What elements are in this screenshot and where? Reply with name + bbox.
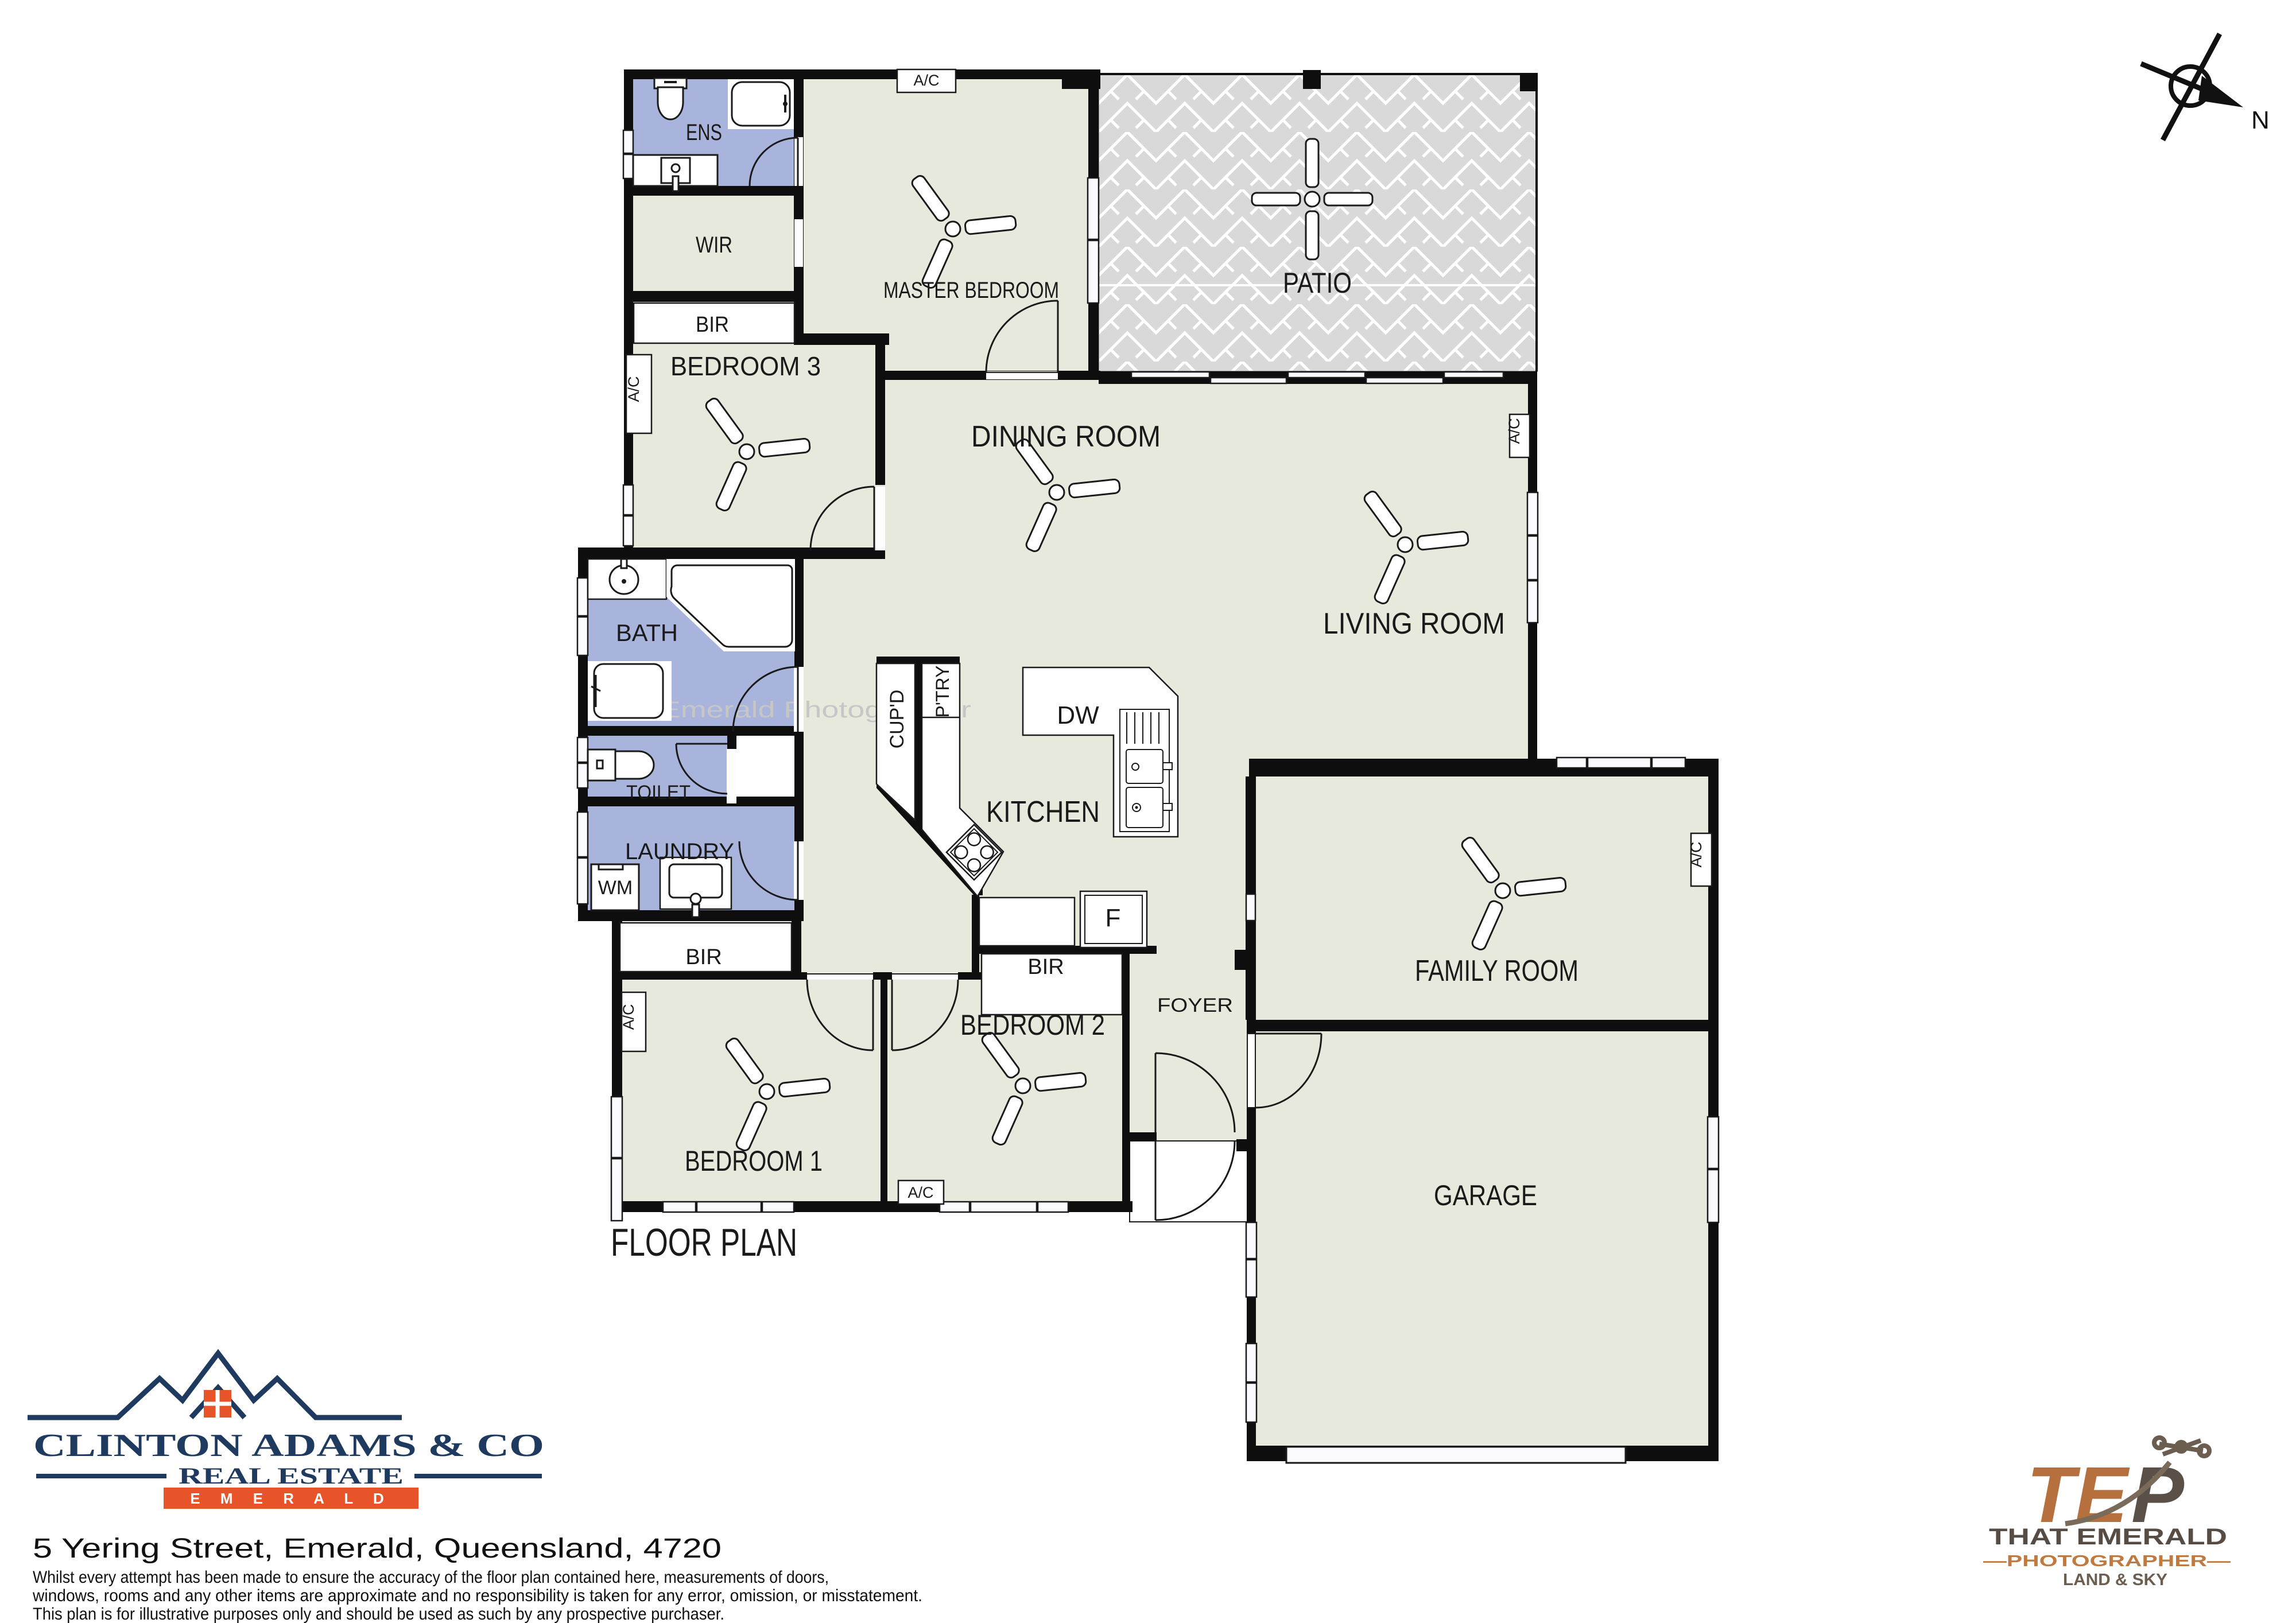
svg-text:DW: DW (1057, 701, 1099, 729)
svg-text:FAMILY ROOM: FAMILY ROOM (1415, 954, 1578, 988)
svg-text:A/C: A/C (1688, 841, 1705, 867)
svg-text:REAL ESTATE: REAL ESTATE (179, 1463, 404, 1489)
svg-text:windows, rooms and any other i: windows, rooms and any other items are a… (32, 1586, 922, 1605)
svg-text:E M E R A L D: E M E R A L D (190, 1490, 392, 1507)
svg-text:CLINTON ADAMS & CO: CLINTON ADAMS & CO (33, 1428, 544, 1463)
svg-text:A/C: A/C (1506, 418, 1523, 444)
svg-text:BIR: BIR (696, 313, 729, 337)
svg-text:P'TRY: P'TRY (932, 666, 953, 718)
svg-text:KITCHEN: KITCHEN (986, 795, 1100, 829)
svg-text:F: F (1106, 904, 1121, 932)
svg-text:LAND & SKY: LAND & SKY (2063, 1571, 2167, 1589)
svg-text:WIR: WIR (696, 232, 732, 258)
svg-text:LIVING ROOM: LIVING ROOM (1323, 607, 1505, 640)
svg-text:BEDROOM 3: BEDROOM 3 (670, 351, 821, 381)
svg-text:BEDROOM 2: BEDROOM 2 (960, 1009, 1105, 1041)
svg-text:GARAGE: GARAGE (1434, 1179, 1537, 1212)
svg-text:BEDROOM 1: BEDROOM 1 (685, 1145, 823, 1177)
svg-text:A/C: A/C (620, 1004, 637, 1030)
svg-text:PATIO: PATIO (1283, 267, 1352, 299)
svg-text:MASTER BEDROOM: MASTER BEDROOM (883, 278, 1059, 303)
svg-text:ENS: ENS (686, 120, 722, 145)
svg-text:N: N (2251, 106, 2270, 134)
svg-text:TOILET: TOILET (626, 782, 691, 803)
svg-text:BIR: BIR (685, 945, 722, 969)
svg-text:5 Yering Street, Emerald, Quee: 5 Yering Street, Emerald, Queensland, 47… (33, 1533, 722, 1564)
svg-text:LAUNDRY: LAUNDRY (625, 839, 734, 864)
svg-text:—PHOTOGRAPHER—: —PHOTOGRAPHER— (1983, 1552, 2231, 1570)
svg-text:BIR: BIR (1027, 955, 1064, 979)
svg-text:Whilst every attempt has been: Whilst every attempt has been made to en… (33, 1568, 829, 1587)
svg-text:CUP'D: CUP'D (886, 690, 908, 749)
svg-text:DINING ROOM: DINING ROOM (971, 420, 1161, 453)
svg-text:A/C: A/C (907, 1184, 933, 1201)
svg-text:THAT EMERALD: THAT EMERALD (1989, 1524, 2227, 1550)
svg-text:A/C: A/C (625, 376, 642, 402)
svg-text:This plan is for illustrative: This plan is for illustrative purposes o… (33, 1605, 724, 1623)
svg-text:BATH: BATH (616, 619, 678, 646)
svg-text:WM: WM (598, 877, 633, 899)
svg-text:A/C: A/C (913, 72, 939, 89)
svg-text:FOYER: FOYER (1157, 995, 1233, 1016)
svg-text:FLOOR PLAN: FLOOR PLAN (611, 1221, 797, 1264)
